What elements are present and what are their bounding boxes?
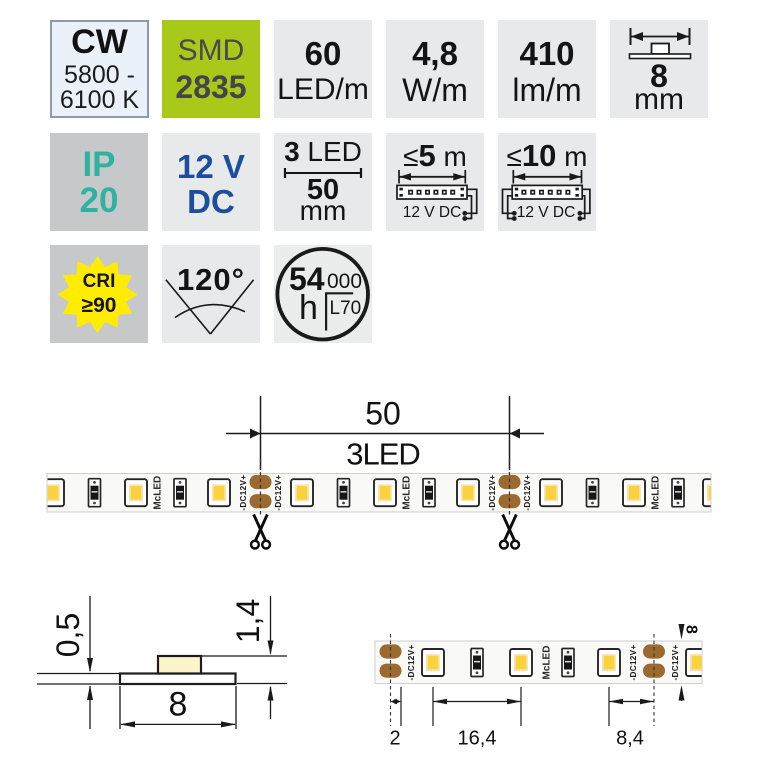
- svg-text:50: 50: [365, 396, 401, 432]
- svg-text:1,4: 1,4: [230, 599, 266, 643]
- svg-text:0,5: 0,5: [50, 613, 86, 657]
- svg-text:8: 8: [169, 686, 188, 724]
- svg-text:8: 8: [683, 625, 700, 634]
- svg-text:2: 2: [389, 728, 400, 750]
- svg-text:3LED: 3LED: [346, 436, 420, 471]
- svg-text:16,4: 16,4: [458, 728, 497, 750]
- svg-text:8,4: 8,4: [616, 728, 644, 750]
